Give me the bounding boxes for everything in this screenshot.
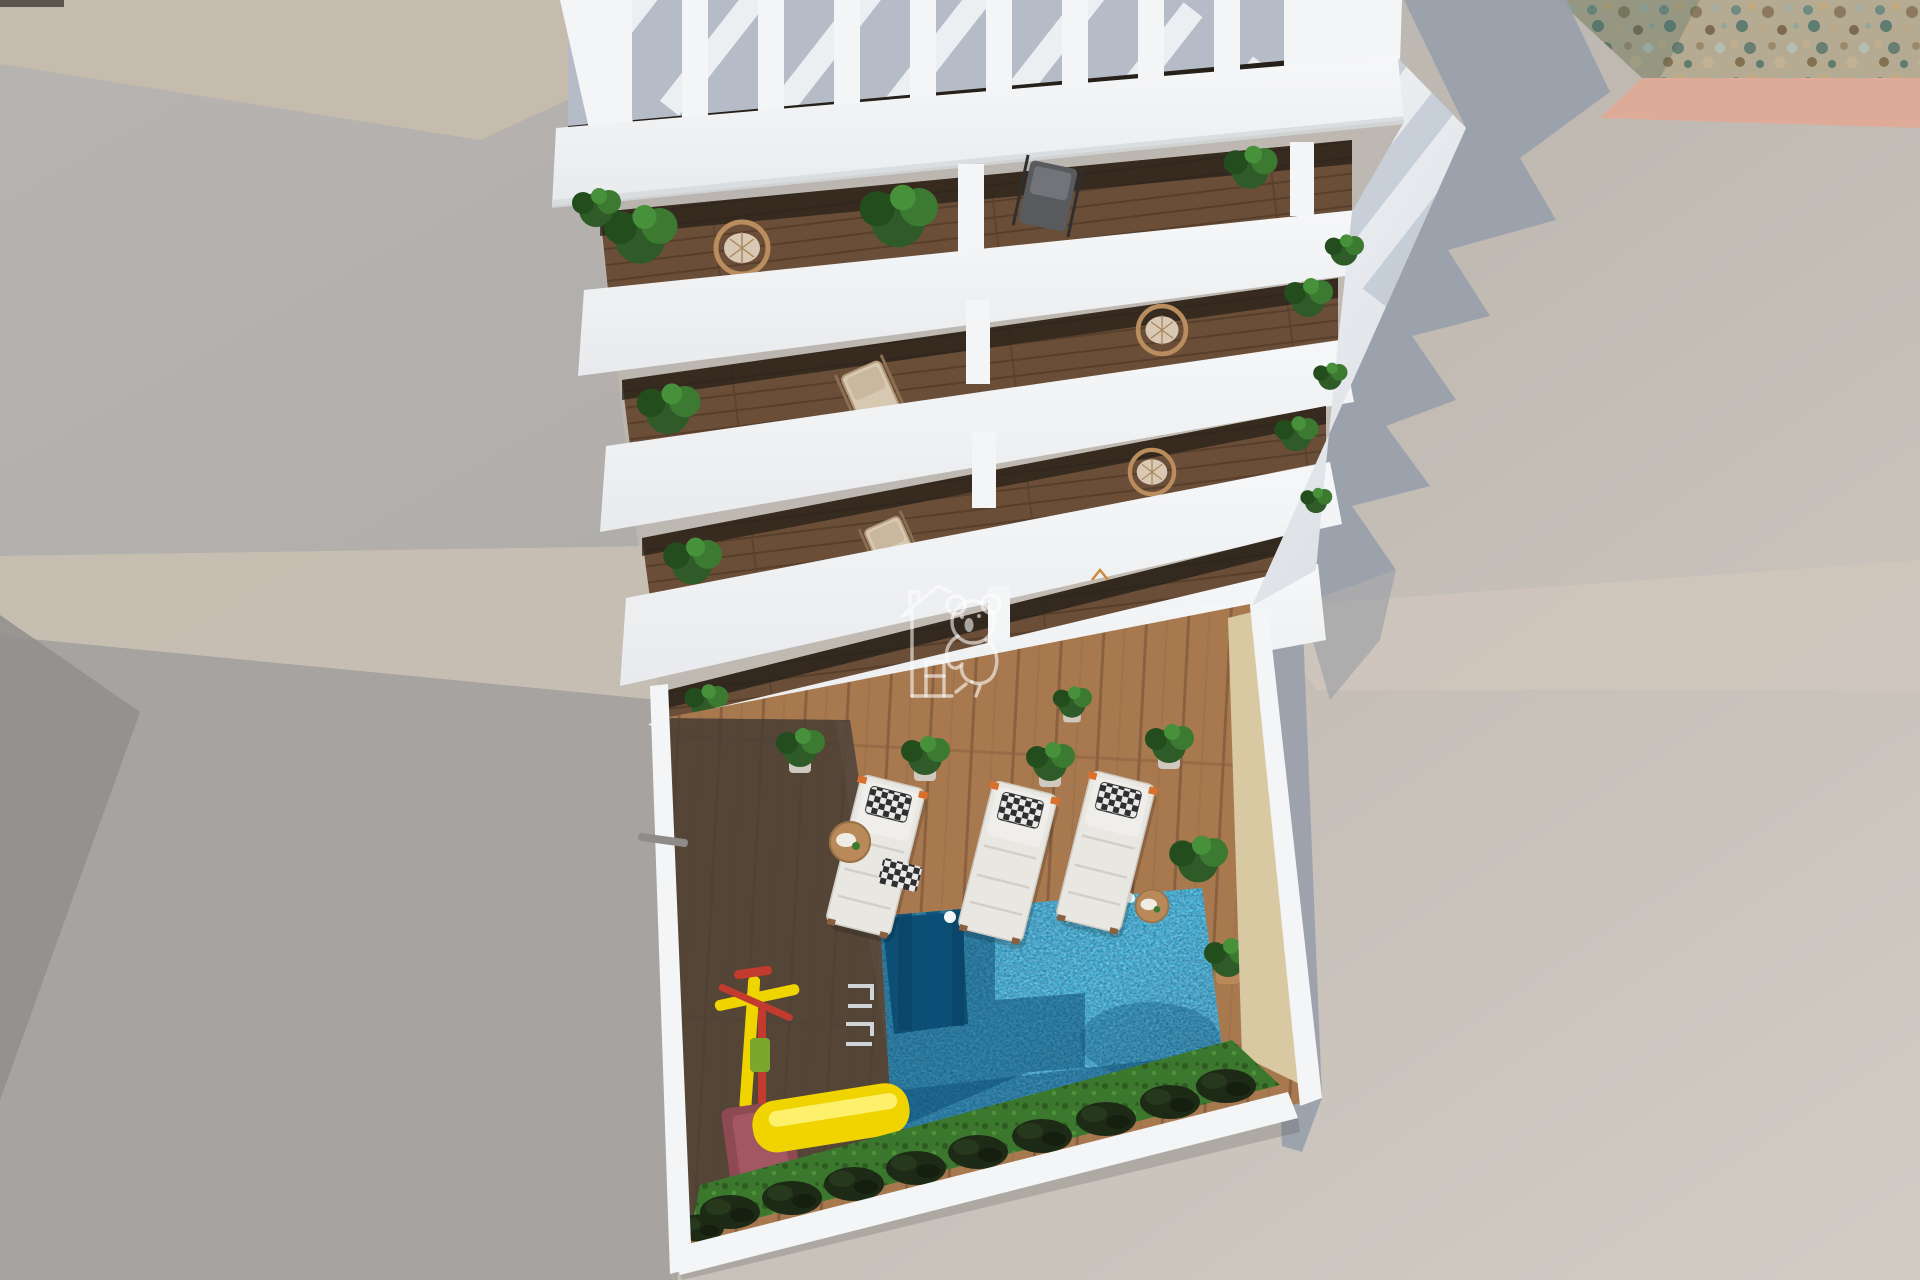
scene-svg (0, 0, 1920, 1280)
balcony-divider-post (966, 300, 990, 384)
side-table (1135, 889, 1169, 923)
balcony-divider-post (958, 164, 984, 258)
pool-furniture (821, 769, 1169, 950)
topleft-gravel-sliver (0, 0, 64, 7)
side-table (829, 821, 871, 863)
pool-light (944, 911, 956, 923)
render-canvas (0, 0, 1920, 1280)
balcony-divider-post (1290, 142, 1314, 216)
balcony-divider-post (972, 432, 996, 508)
